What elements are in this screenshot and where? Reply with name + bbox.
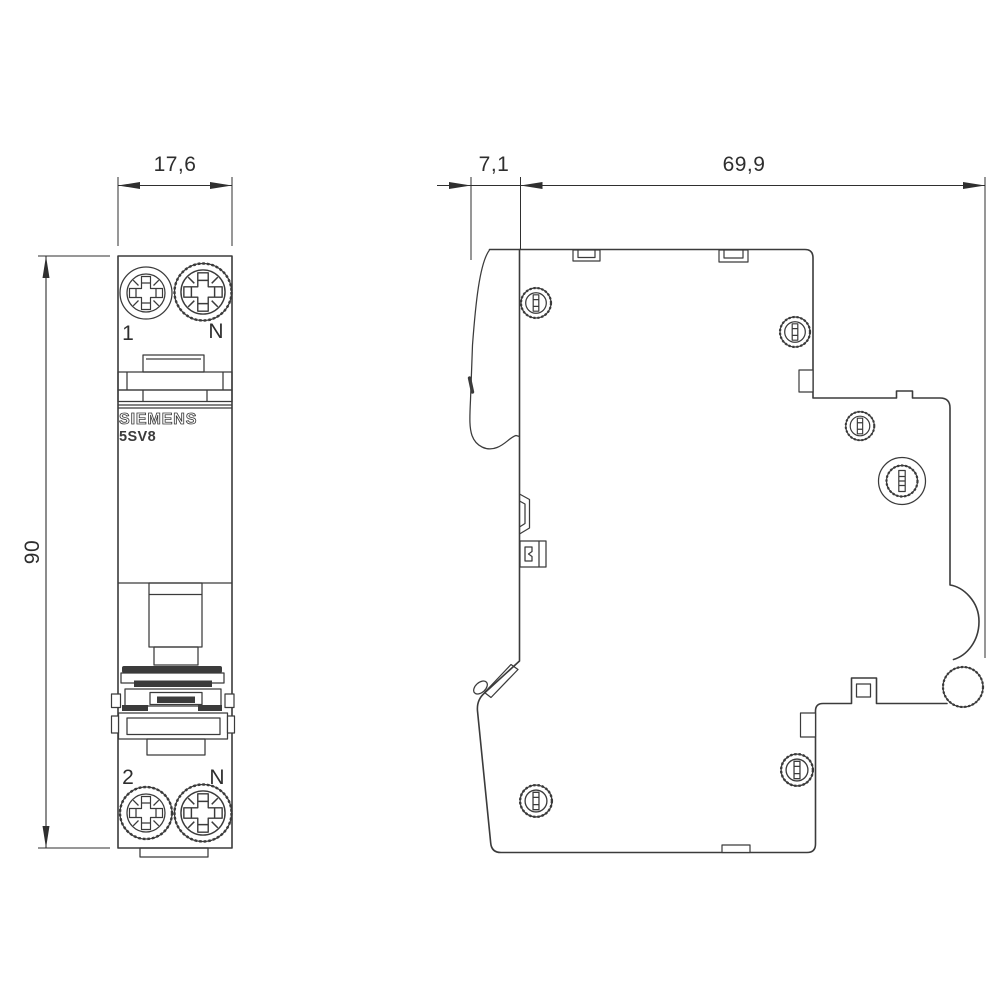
housing-screw-rear-bottom: [781, 754, 813, 786]
side-rear-tab-lower: [801, 713, 816, 737]
din-clip-end: [857, 684, 871, 697]
model-label: 5SV8: [119, 429, 156, 445]
side-housing-outline-lower: [477, 250, 947, 853]
side-rear-tab-upper: [799, 370, 813, 392]
dimension-drawing: 17,6 90 7,1 69,9 1 N: [0, 0, 1000, 1000]
housing-screw-front-top: [521, 288, 551, 318]
side-front-face-details: [471, 494, 546, 698]
terminal-screw-top-right: [175, 264, 232, 321]
housing-screw-front-bottom: [520, 785, 552, 817]
terminal-screw-bottom-left: [120, 787, 172, 839]
side-view: [470, 250, 984, 853]
toggle-collar-front: [112, 666, 235, 711]
front-lower-band: [112, 713, 235, 755]
front-width-label: 17,6: [154, 153, 197, 176]
front-foot-tab: [140, 848, 208, 857]
side-body-depth-label: 69,9: [723, 153, 766, 176]
housing-screw-rear-top: [780, 317, 810, 347]
front-housing-outline: [118, 256, 232, 848]
terminal-label-2: 2: [122, 766, 134, 789]
terminal-label-n-top: N: [208, 320, 223, 343]
housing-screw-rear-mid: [846, 412, 875, 441]
terminal-screw-top-left: [120, 267, 172, 319]
dimension-front-width: 17,6: [118, 153, 232, 246]
brand-label: SIEMENS: [119, 411, 197, 428]
front-upper-band: [118, 355, 232, 408]
toggle-lever-front: [149, 583, 202, 665]
terminal-label-1: 1: [122, 322, 134, 345]
technical-drawing-canvas: 17,6 90 7,1 69,9 1 N: [0, 0, 1000, 1000]
side-housing-outline-upper: [490, 250, 980, 660]
housing-screw-large: [879, 458, 926, 505]
side-toggle-depth-label: 7,1: [479, 153, 510, 176]
side-top-clips: [573, 250, 748, 262]
front-height-label: 90: [21, 540, 44, 564]
front-view: 1 N SIEMENS 5SV8: [112, 256, 235, 857]
side-bottom-tab: [722, 845, 750, 853]
din-clip-knob: [943, 667, 983, 707]
toggle-lever-side: [470, 250, 520, 449]
dimension-front-height: 90: [21, 256, 110, 848]
terminal-screw-bottom-right: [175, 785, 232, 842]
